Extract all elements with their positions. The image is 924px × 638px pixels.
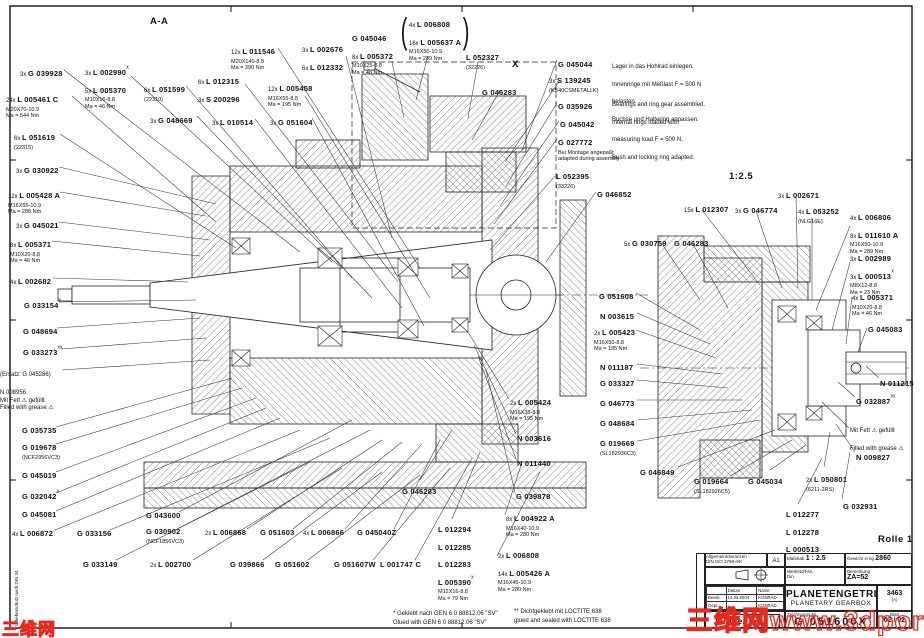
part-label: G 046849 <box>640 462 675 480</box>
part-label: G 051607W <box>334 554 376 572</box>
part-label: G 051608 <box>599 286 634 304</box>
part-label: G 045019 <box>22 465 57 483</box>
part-label: G 033273xx <box>23 342 63 360</box>
part-label: 4x L 053252(NLG16E) <box>798 201 839 225</box>
part-label: G 051603 <box>260 522 295 540</box>
leader-line <box>57 318 200 328</box>
part-label: 3x G 039928 <box>20 63 63 81</box>
remark-label: Bemerkung <box>847 569 870 574</box>
part-label: N 003615 <box>600 306 634 324</box>
part-label: G 039866 <box>230 554 265 572</box>
part-label: 3x G 045021 <box>16 215 59 233</box>
part-label: N 003616 <box>517 428 551 446</box>
part-label: G 033327 <box>600 373 635 391</box>
leader-line <box>72 96 216 222</box>
part-label: N 009827 <box>856 447 890 465</box>
sheet-format: A1 <box>772 558 779 564</box>
part-label: G 046283 <box>674 233 709 251</box>
leader-line <box>52 241 200 256</box>
part-label: 12x L 011546M20X140-8.8Ma = 390 Nm <box>231 41 275 71</box>
part-label: G 048684 <box>600 413 635 431</box>
remark-value: ZA=52 <box>847 574 868 581</box>
weight-value: 2860 <box>875 555 891 562</box>
part-label: 3x L 002671 <box>778 185 819 203</box>
leader-line <box>60 192 206 216</box>
watermark-left: 三维网 <box>2 615 56 638</box>
part-label: G 033156 <box>77 523 112 541</box>
leader-line <box>61 338 206 349</box>
part-label: G 051602 <box>275 554 310 572</box>
part-label: 3x L 010514 <box>212 112 253 130</box>
part-label: N 011187 <box>600 357 633 375</box>
part-label: 2x L 005424M16X35-8.8Ma = 195 Nm <box>510 392 551 422</box>
part-label: G 045042 <box>560 114 595 132</box>
part-label: 4x L 006866 <box>303 522 344 540</box>
assembly-note-en: Bearings and ring gear assembled.Interna… <box>612 93 705 163</box>
part-label: 3x G 051604 <box>270 112 313 130</box>
part-label: G 027772Bei Montage angepaßtadapted duri… <box>558 132 619 162</box>
scale-value: 1 : 2.5 <box>806 555 826 562</box>
part-label: 2x L 005423M16X50-8.8Ma = 195 Nm <box>594 322 635 352</box>
part-label: G 019664(SL182926C5) <box>694 471 730 495</box>
footnote-2: ** Dichtgeklebt mit LOCTITE 638glued and… <box>514 600 611 624</box>
part-label: 3x G 048669 <box>150 110 193 128</box>
part-label: G 045083 <box>868 319 903 337</box>
part-label: G 032042x <box>22 486 59 504</box>
leader-line <box>59 222 210 240</box>
part-label: 4x L 005371M10X20-8.8Ma = 46 Nm <box>852 287 893 317</box>
engineering-drawing-page: A-AX1:2.5Rolle 13x G 0399283x L 002990x5… <box>0 0 924 638</box>
part-label: G 030902(NCF1856VC3) <box>146 521 184 545</box>
part-label: L 001747 C <box>380 554 421 572</box>
part-label: 2x L 00680814x L 005426 AM16X45-10.9Ma =… <box>498 545 550 593</box>
part-label: L 052395(33226) <box>556 166 589 190</box>
index-number: 3463 <box>878 590 911 597</box>
leader-line <box>824 432 830 467</box>
part-label: G 045044 <box>558 54 593 72</box>
part-label: 24x L 005461 CM20X70-10.9Ma = 544 Nm <box>6 89 58 119</box>
part-label: G 032931 <box>843 496 878 514</box>
part-label: 5x G 030759 <box>624 233 667 251</box>
part-label: 6x L 0123153x S 200296 <box>198 71 240 106</box>
leader-line <box>62 360 210 370</box>
material-label: Werkstoff-Nr. <box>787 569 813 574</box>
part-label: 3x S 139245(KB40CSMETALLK) <box>549 70 598 94</box>
roller-label: Rolle 1 <box>878 529 913 547</box>
part-label: 8x L 004922 AM16X40-10.9Ma = 280 Nm <box>506 508 555 538</box>
detail-scale: 1:2.5 <box>729 166 753 184</box>
part-label: G 045081 <box>22 504 57 522</box>
part-label: G 043600 <box>146 505 181 523</box>
part-label: G 032887xx <box>856 391 896 409</box>
weight-label: Gewicht in kg <box>847 556 874 561</box>
part-label: 2x L 002700 <box>150 554 191 572</box>
part-label: G 046852 <box>597 184 632 202</box>
part-label: (Ersatz: G 045286)N 008956Mit Fett ⚠ gef… <box>0 363 54 412</box>
part-label: 8x L 005371M10X20-8.8Ma = 46 Nm <box>10 234 51 264</box>
part-label: 3x G 030922 <box>16 160 59 178</box>
section-title: A-A <box>150 11 168 29</box>
part-label: G 033149 <box>83 554 118 572</box>
part-label: 3x L 002990x5x L 005370M10X16-8.8Ma = 46… <box>85 62 129 110</box>
part-label: G 045034 <box>748 471 783 489</box>
part-label: G 045040Z <box>357 522 396 540</box>
part-label: G 033154x <box>24 295 61 313</box>
part-label: G 0450468x L 005372M10X25-8.8Ma = 46 Nm <box>352 28 393 76</box>
part-label: 3x L 0026766x L 012332 <box>302 39 343 74</box>
part-label: L 012294L 012285L 012283L 005390xM12X16-… <box>438 519 474 602</box>
watermark: 三维网www.3dportal.cn <box>686 599 924 638</box>
part-label: 6x L 051599(22310) <box>144 79 185 103</box>
part-label: 4x L 002682 <box>10 271 51 289</box>
part-label: G 046283 <box>402 481 437 499</box>
footnote-1: * Geklebt nach GEN 6 0 88812.06 "SV"Glue… <box>393 602 498 626</box>
part-label: 3x G 046774 <box>735 200 778 218</box>
part-label: 12x L 005428 AM16X55-10.9Ma = 288 Nm <box>8 185 60 215</box>
part-label: G 039878 <box>516 486 551 504</box>
projection-symbol <box>706 568 784 584</box>
part-label: 15x L 012307 <box>684 199 729 217</box>
part-label: 2x L 050801(6211-2RS) <box>806 469 847 493</box>
part-label: 6x L 051619(22315) <box>14 127 55 151</box>
leader-line <box>816 226 850 310</box>
tolerance-note: Allgemeintoleranzen <box>706 554 747 559</box>
part-label: G 035735 <box>22 420 57 438</box>
part-label: G 019669(SL182936C3) <box>600 433 636 457</box>
leader-line <box>53 278 188 282</box>
part-label: 4x L 00680816x L 005637 AM16X50-10.9Ma =… <box>400 14 470 62</box>
part-label: 4x L 006872 <box>12 523 53 541</box>
part-label: N 011440 <box>517 453 551 471</box>
part-label: G 035926 <box>558 96 593 114</box>
leader-line <box>56 388 242 444</box>
detail-marker: X <box>512 54 519 72</box>
part-label: 12x L 005458M16X55-8.8Ma = 195 Nm <box>268 78 313 108</box>
part-label: L 052327(32226) <box>466 47 499 71</box>
part-label: G 046773 <box>600 393 635 411</box>
part-label: G 046283 <box>482 82 517 100</box>
part-label: G 048694 <box>23 321 58 339</box>
scale-label: Maßstab <box>787 556 805 561</box>
part-label: G 019678(NCF2956VC3) <box>22 437 60 461</box>
part-label: N 011215 <box>880 373 914 391</box>
part-label: 2x L 006868 <box>205 522 246 540</box>
